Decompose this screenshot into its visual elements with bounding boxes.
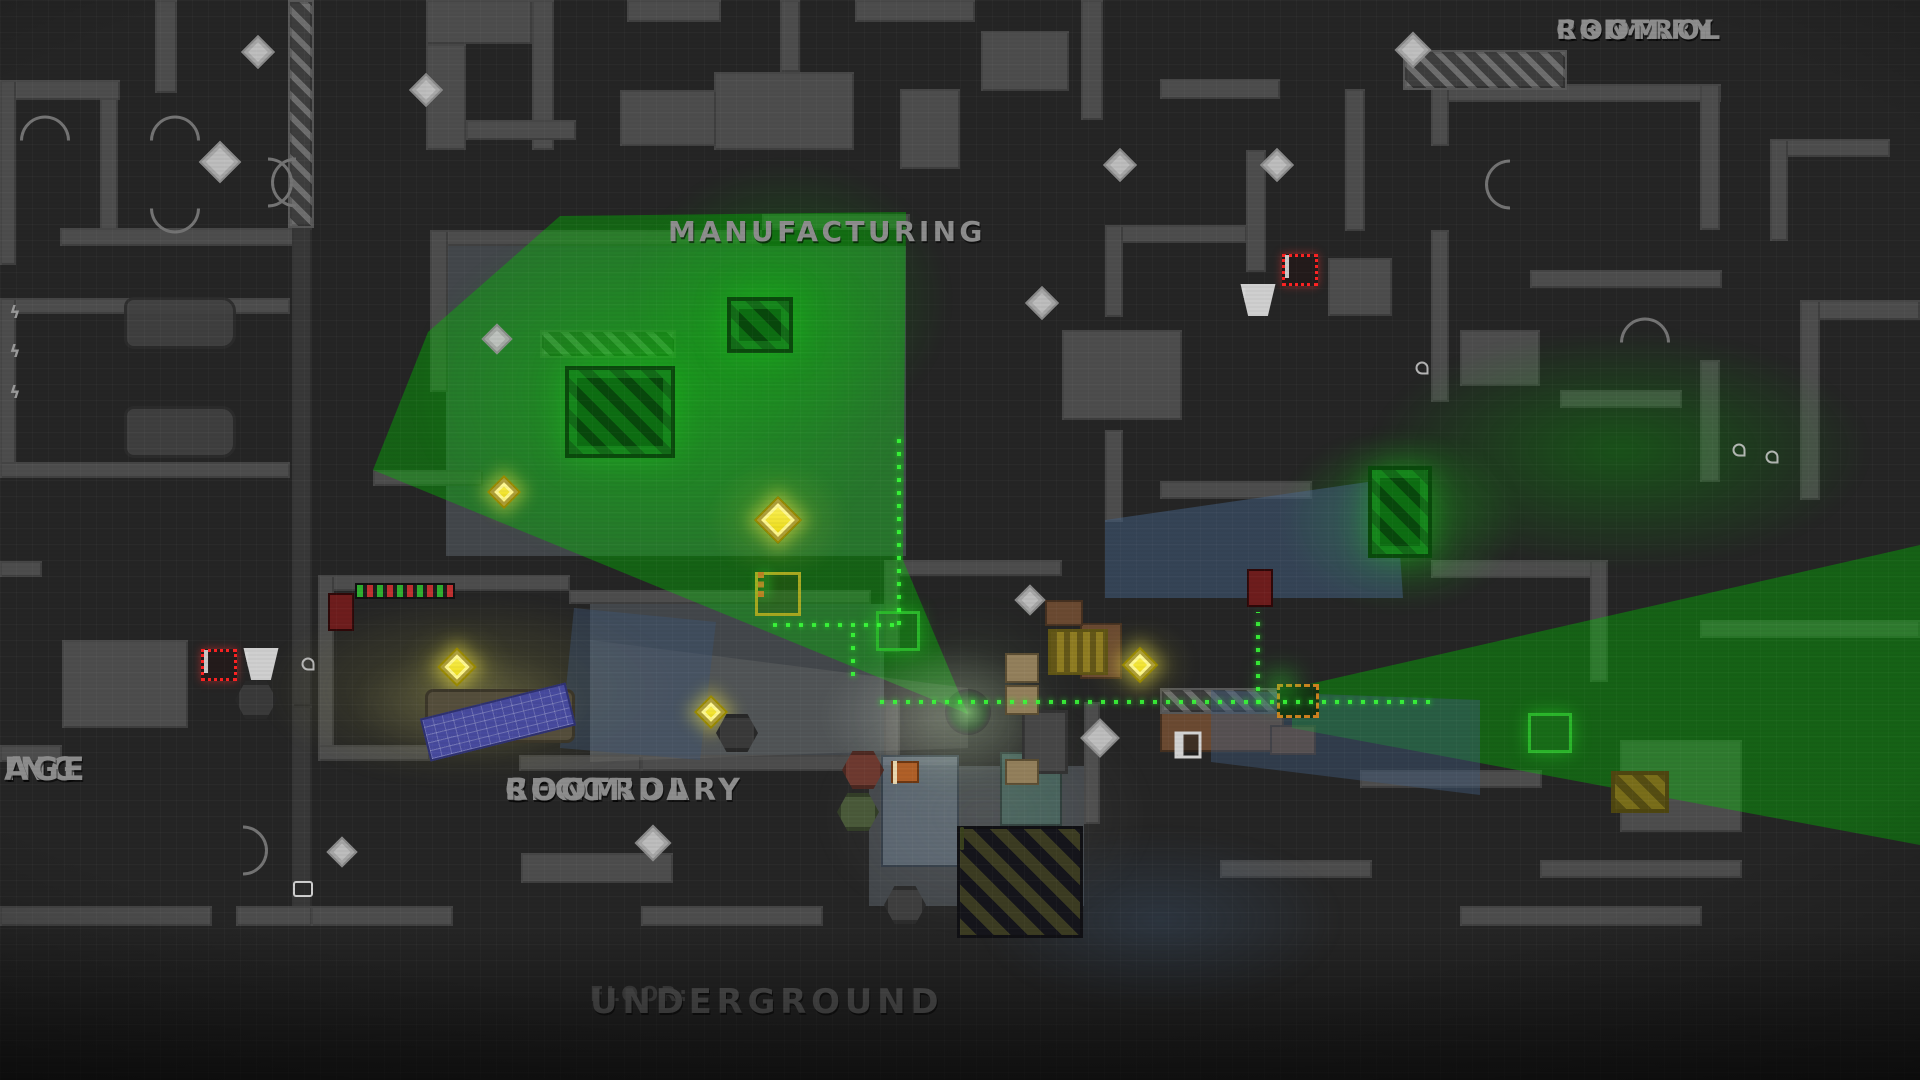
wall-block <box>0 80 16 265</box>
wall-block <box>1460 330 1540 386</box>
wall-block <box>100 98 118 246</box>
room-label-line: SECONDARY <box>505 774 743 808</box>
warning-marker-icon <box>1239 284 1277 316</box>
wall-block <box>0 462 290 478</box>
yellow-machine <box>1611 771 1669 813</box>
wall-block <box>1460 906 1702 926</box>
wall-block <box>1105 225 1123 317</box>
wall-block <box>0 298 290 314</box>
light-zone <box>0 0 1920 1080</box>
door-arc[interactable] <box>20 116 70 141</box>
wall-block <box>1105 225 1247 243</box>
wall-block <box>1246 150 1266 272</box>
wall-block <box>236 906 312 926</box>
room-label-line: ROOM <box>505 774 623 808</box>
wall-block <box>569 590 871 604</box>
wall-block <box>60 228 310 246</box>
room-label-line: ING <box>4 752 80 788</box>
assembly-machine <box>957 826 1083 938</box>
wall-block <box>155 0 177 93</box>
warning-marker-icon <box>242 648 280 680</box>
guard-path-dots <box>851 628 855 676</box>
wall-block <box>1270 725 1316 755</box>
wall-block <box>714 72 854 150</box>
wall-block <box>900 560 1062 576</box>
spark-icon: ϟ <box>9 303 20 323</box>
crate <box>1022 710 1068 774</box>
blueprint-coin-icon <box>199 141 241 183</box>
room-labels-layer: PRIMARYCONTROLROOMMANUFACTURINGSECONDARY… <box>0 0 1920 1080</box>
wall-block <box>1062 330 1182 420</box>
wall-block <box>1540 860 1742 878</box>
light-zone <box>630 160 950 440</box>
guard-path-dots <box>897 432 901 625</box>
guard-paths-layer <box>0 0 1920 1080</box>
door-arc[interactable] <box>1620 318 1670 343</box>
light-zone <box>0 0 1920 1080</box>
wall-block <box>762 214 910 230</box>
wall-block <box>540 330 676 358</box>
display-case-icon[interactable] <box>876 611 920 651</box>
wall-block <box>0 906 212 926</box>
wall-block <box>1800 300 1920 320</box>
hex-table <box>716 714 758 752</box>
hex-table <box>884 886 926 924</box>
wall-block <box>318 745 430 761</box>
hex-table <box>842 751 884 789</box>
wall-block <box>881 755 959 867</box>
wall-block <box>311 906 453 926</box>
blueprint-coin-icon <box>1080 718 1120 758</box>
blueprint-coin-icon <box>1395 32 1432 69</box>
display-case-icon[interactable] <box>1528 713 1572 753</box>
wall-block <box>1431 230 1449 402</box>
wall-block <box>869 766 1084 906</box>
wall-block <box>0 745 62 762</box>
door-arc[interactable] <box>150 116 200 141</box>
blueprint-coin-icon <box>409 73 443 107</box>
wall-block <box>884 560 900 652</box>
spark-icon: ϟ <box>9 383 20 403</box>
wall-block <box>627 0 721 22</box>
wall-block <box>373 470 483 486</box>
door-arc[interactable] <box>243 826 268 876</box>
blueprint-coin-icon <box>241 35 275 69</box>
wall-block <box>1530 270 1722 288</box>
light-zone <box>0 0 1920 1080</box>
hex-table <box>235 681 277 719</box>
light-zone <box>0 0 1920 1080</box>
wall-block <box>0 80 120 100</box>
wall-block <box>1220 860 1372 878</box>
wall-block <box>288 0 314 228</box>
green-machine <box>565 366 675 458</box>
security-console[interactable] <box>1247 569 1273 607</box>
hex-table <box>837 793 879 831</box>
wall-block <box>641 906 823 926</box>
blueprint-coin-icon <box>635 825 672 862</box>
light-zone <box>260 595 680 785</box>
wall-block <box>1160 481 1312 499</box>
car-sprite <box>124 406 236 458</box>
alarm-marker-icon[interactable] <box>201 649 237 681</box>
wall-block <box>0 298 16 478</box>
wall-block <box>620 90 716 146</box>
valve-icon <box>302 658 315 671</box>
blueprint-document[interactable] <box>420 683 576 762</box>
panel-marker-icon <box>1175 732 1202 759</box>
car-sprite <box>124 297 236 349</box>
room-label-line: MANUFACTURING <box>668 216 986 247</box>
wall-block <box>62 640 188 728</box>
sprites-layer: ϟϟϟ <box>0 0 1920 1080</box>
wall-block <box>1700 620 1920 638</box>
light-zone <box>1085 620 1195 710</box>
light-zone <box>1280 430 1520 610</box>
door-arc[interactable] <box>150 209 200 234</box>
door-arc[interactable] <box>268 158 293 208</box>
room-label-line: CONTROL <box>505 774 691 808</box>
supply-crate <box>891 761 919 783</box>
wall-block <box>521 853 673 883</box>
gold-coin-icon[interactable] <box>487 475 521 509</box>
locker[interactable] <box>1005 759 1039 785</box>
light-zone <box>820 646 1060 786</box>
wall-block <box>1105 430 1123 522</box>
gold-coin-icon[interactable] <box>437 647 477 687</box>
guard-path-dots <box>880 700 1430 704</box>
guard-path-dots <box>773 623 903 627</box>
wall-block <box>1431 84 1449 146</box>
wall-block <box>1770 139 1788 241</box>
wall-block <box>1045 600 1083 626</box>
light-zone <box>410 210 910 570</box>
wall-block <box>318 575 334 761</box>
forklift-sprite <box>1048 629 1108 675</box>
wall-block <box>1770 139 1890 157</box>
wall-block <box>446 246 906 556</box>
green-machine <box>1368 466 1432 558</box>
player-character[interactable] <box>945 689 991 735</box>
door-arc[interactable] <box>271 158 296 208</box>
wall-block <box>466 120 576 140</box>
wall-block <box>855 0 975 22</box>
wall-block <box>292 706 312 911</box>
wall-block <box>1328 258 1392 316</box>
wall-block <box>900 89 960 169</box>
wall-block <box>1345 89 1365 231</box>
wall-block <box>1590 560 1608 682</box>
alarm-marker-icon[interactable] <box>1282 254 1318 286</box>
gold-coin-icon[interactable] <box>694 695 728 729</box>
locker[interactable] <box>1005 653 1039 683</box>
indicator-panel <box>355 583 455 599</box>
wall-block <box>884 700 900 762</box>
wall-block <box>780 0 800 72</box>
wall-block <box>292 228 312 706</box>
light-zone <box>1370 330 1870 570</box>
vignette-overlay <box>0 0 1920 1080</box>
wall-block <box>1431 84 1721 102</box>
wall-block <box>1620 740 1742 832</box>
blueprint-coin-icon <box>1260 148 1294 182</box>
noise-overlay <box>0 0 1920 1080</box>
light-zone <box>0 0 1920 1080</box>
grid-overlay <box>0 0 1920 1080</box>
power-socket-icon[interactable] <box>293 881 313 897</box>
gold-coin-icon[interactable] <box>754 496 802 544</box>
blueprint-coin-icon <box>481 323 512 354</box>
wall-block <box>1431 560 1593 578</box>
trophy-case-icon[interactable] <box>755 572 801 616</box>
room-label-line: AGE <box>4 752 88 788</box>
blueprint-coin-icon <box>1103 148 1137 182</box>
light-zone <box>815 695 1155 935</box>
gold-coin-icon[interactable] <box>1122 647 1159 684</box>
wall-block <box>0 561 42 577</box>
wall-block <box>1403 50 1567 90</box>
valve-icon <box>1733 444 1746 457</box>
room-label-line: CONTROL <box>1556 16 1723 46</box>
wall-block <box>1360 770 1542 788</box>
hacked-camera-icon[interactable] <box>1277 684 1319 718</box>
wall-block <box>519 755 641 771</box>
wall-block <box>330 575 570 591</box>
room-label-line: ROOM <box>1556 16 1663 46</box>
security-console[interactable] <box>328 593 354 631</box>
wall-block <box>426 44 466 150</box>
wall-block <box>1080 623 1122 679</box>
wall-block <box>1700 84 1720 230</box>
wall-block <box>1700 360 1720 482</box>
light-zone <box>708 460 848 580</box>
light-zone <box>402 622 512 712</box>
wall-block <box>1160 708 1284 752</box>
locker[interactable] <box>1005 685 1039 715</box>
blueprint-coin-icon <box>326 836 357 867</box>
wall-block <box>641 755 883 771</box>
light-zone <box>350 650 590 760</box>
wall-block <box>430 230 762 246</box>
wall-block <box>590 604 884 756</box>
wall-block <box>981 31 1069 91</box>
wall-block <box>1160 79 1280 99</box>
bottom-shade <box>0 930 1920 1080</box>
wall-block <box>426 0 532 44</box>
wall-block <box>1560 390 1682 408</box>
light-zone <box>0 0 1920 1080</box>
wall-block <box>1800 300 1820 500</box>
blueprint-coin-icon <box>1025 286 1059 320</box>
light-zones-layer <box>0 0 1920 1080</box>
wall-block <box>1000 752 1062 826</box>
room-label-line: PRIMARY <box>1556 16 1716 46</box>
valve-icon <box>1416 362 1429 375</box>
blueprint-coin-icon <box>1014 584 1045 615</box>
valve-icon <box>1766 451 1779 464</box>
guard-path-dots <box>1256 612 1260 704</box>
wall-block <box>532 0 554 150</box>
table <box>425 689 575 743</box>
wall-block <box>1081 0 1103 120</box>
green-machine <box>727 297 793 353</box>
walls-layer <box>0 0 1920 1080</box>
wall-block <box>1160 688 1284 714</box>
game-map-view: ϟϟϟ PRIMARYCONTROLROOMMANUFACTURINGSECON… <box>0 0 1920 1080</box>
spark-icon: ϟ <box>9 342 20 362</box>
wall-block <box>1084 702 1100 824</box>
door-arc[interactable] <box>1485 160 1510 210</box>
wall-block <box>430 230 448 392</box>
